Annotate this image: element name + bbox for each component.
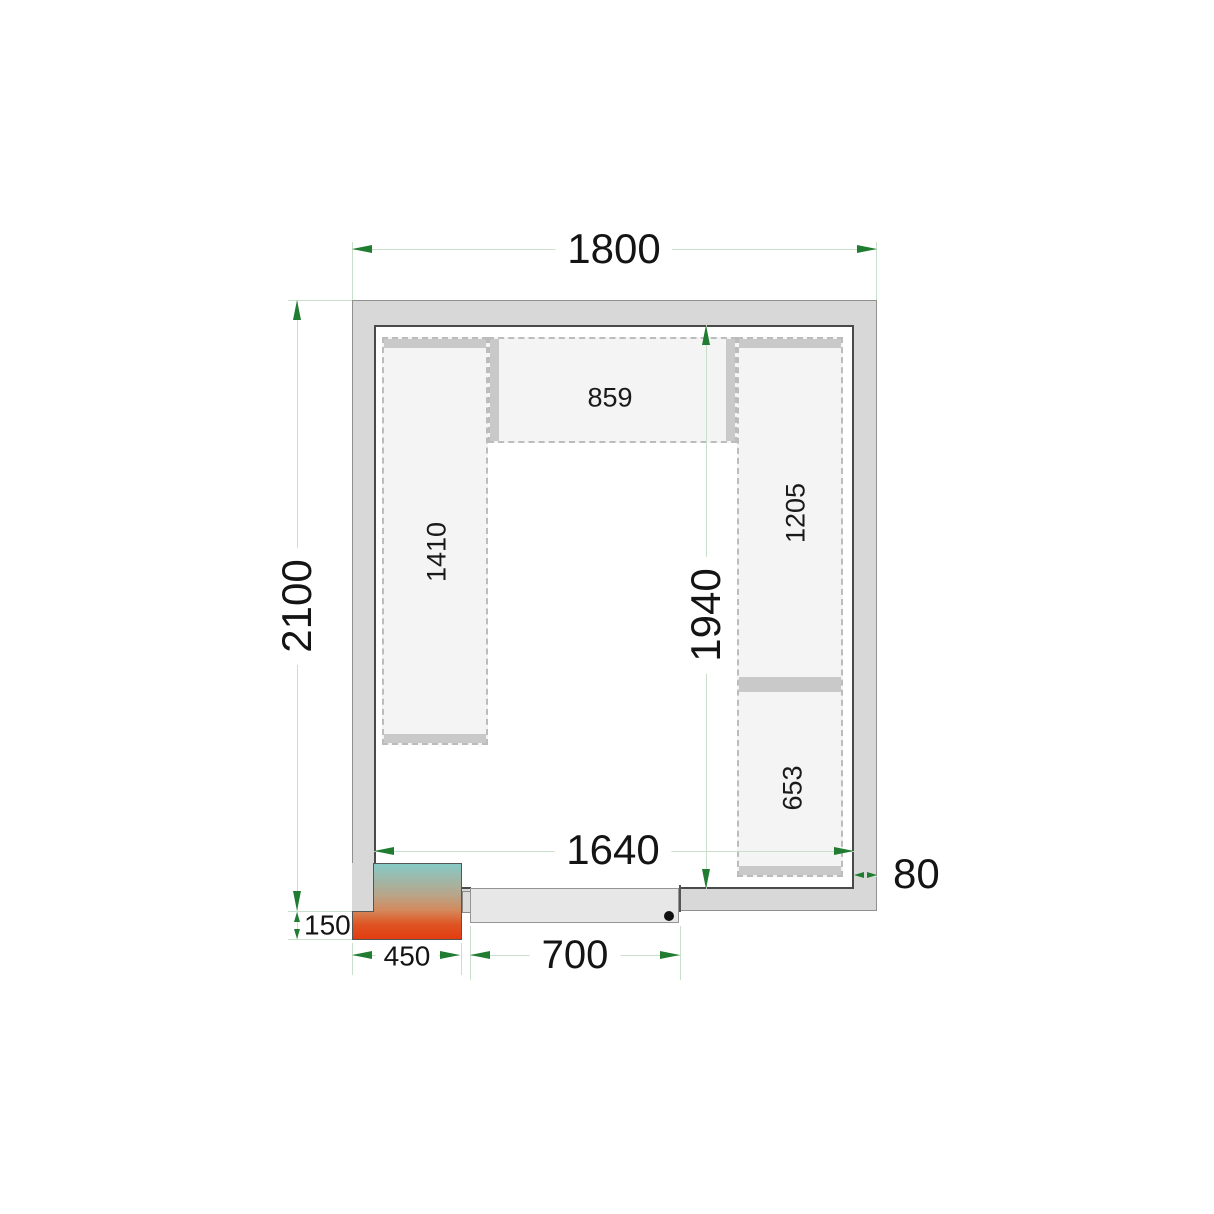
dim-unit-protrusion-arrow-bottom — [294, 929, 300, 939]
shelf-left-bottom-bar — [384, 734, 486, 743]
dim-inner-height-arrow-bottom — [702, 869, 710, 889]
shelf-right-upper-label: 1205 — [781, 483, 812, 543]
dim-unit-width-extension-right — [461, 943, 462, 975]
dim-outer-height-arrow-bottom — [293, 891, 301, 911]
dim-wall-thickness-label: 80 — [893, 852, 940, 896]
floor-plan-canvas: 1410 859 1205 653 1800 2100 1940 1640 8 — [0, 0, 1214, 1214]
dim-door-width-extension-right — [680, 926, 681, 980]
shelf-top: 859 — [488, 337, 737, 443]
dim-door-width-arrow-left — [470, 951, 490, 959]
dim-unit-width-arrow-left — [352, 951, 372, 959]
dim-inner-width-label: 1640 — [554, 828, 671, 872]
dim-door-width-label: 700 — [530, 934, 621, 976]
dim-outer-height-arrow-top — [293, 300, 301, 320]
dim-unit-width-arrow-right — [440, 951, 460, 959]
dim-unit-protrusion-label: 150 — [304, 910, 351, 939]
shelf-top-left-bar — [490, 339, 499, 441]
shelf-right-top-bar — [739, 339, 841, 348]
shelf-right-lower-label: 653 — [778, 765, 809, 810]
shelf-left-label: 1410 — [422, 522, 453, 582]
door-handle-icon — [664, 911, 674, 921]
dim-outer-width-arrow-right — [857, 245, 877, 253]
shelf-top-label: 859 — [587, 383, 632, 414]
dim-inner-width-arrow-right — [834, 847, 854, 855]
dim-wall-thickness-arrow-left — [854, 872, 864, 878]
dim-outer-width-arrow-left — [352, 245, 372, 253]
dim-unit-protrusion-arrow-top — [294, 912, 300, 922]
dim-door-width-arrow-right — [660, 951, 680, 959]
shelf-left: 1410 — [382, 337, 488, 745]
dim-inner-height-label: 1940 — [684, 556, 728, 673]
dim-outer-height-label: 2100 — [275, 547, 319, 664]
dim-unit-width-label: 450 — [376, 941, 439, 970]
shelf-right-bottom-bar — [739, 866, 841, 875]
shelf-right: 1205 653 — [737, 337, 843, 877]
dim-unit-width-extension-left — [352, 943, 353, 975]
door-leaf — [470, 888, 679, 923]
dim-outer-width-label: 1800 — [555, 227, 672, 271]
dim-inner-height-arrow-top — [702, 325, 710, 345]
shelf-top-right-bar — [726, 339, 735, 441]
dim-wall-thickness-arrow-right — [867, 872, 877, 878]
dim-inner-width-arrow-left — [374, 847, 394, 855]
shelf-left-top-bar — [384, 339, 486, 348]
cooling-unit-wall-notch — [352, 863, 374, 912]
shelf-right-divider-bar — [739, 677, 841, 692]
